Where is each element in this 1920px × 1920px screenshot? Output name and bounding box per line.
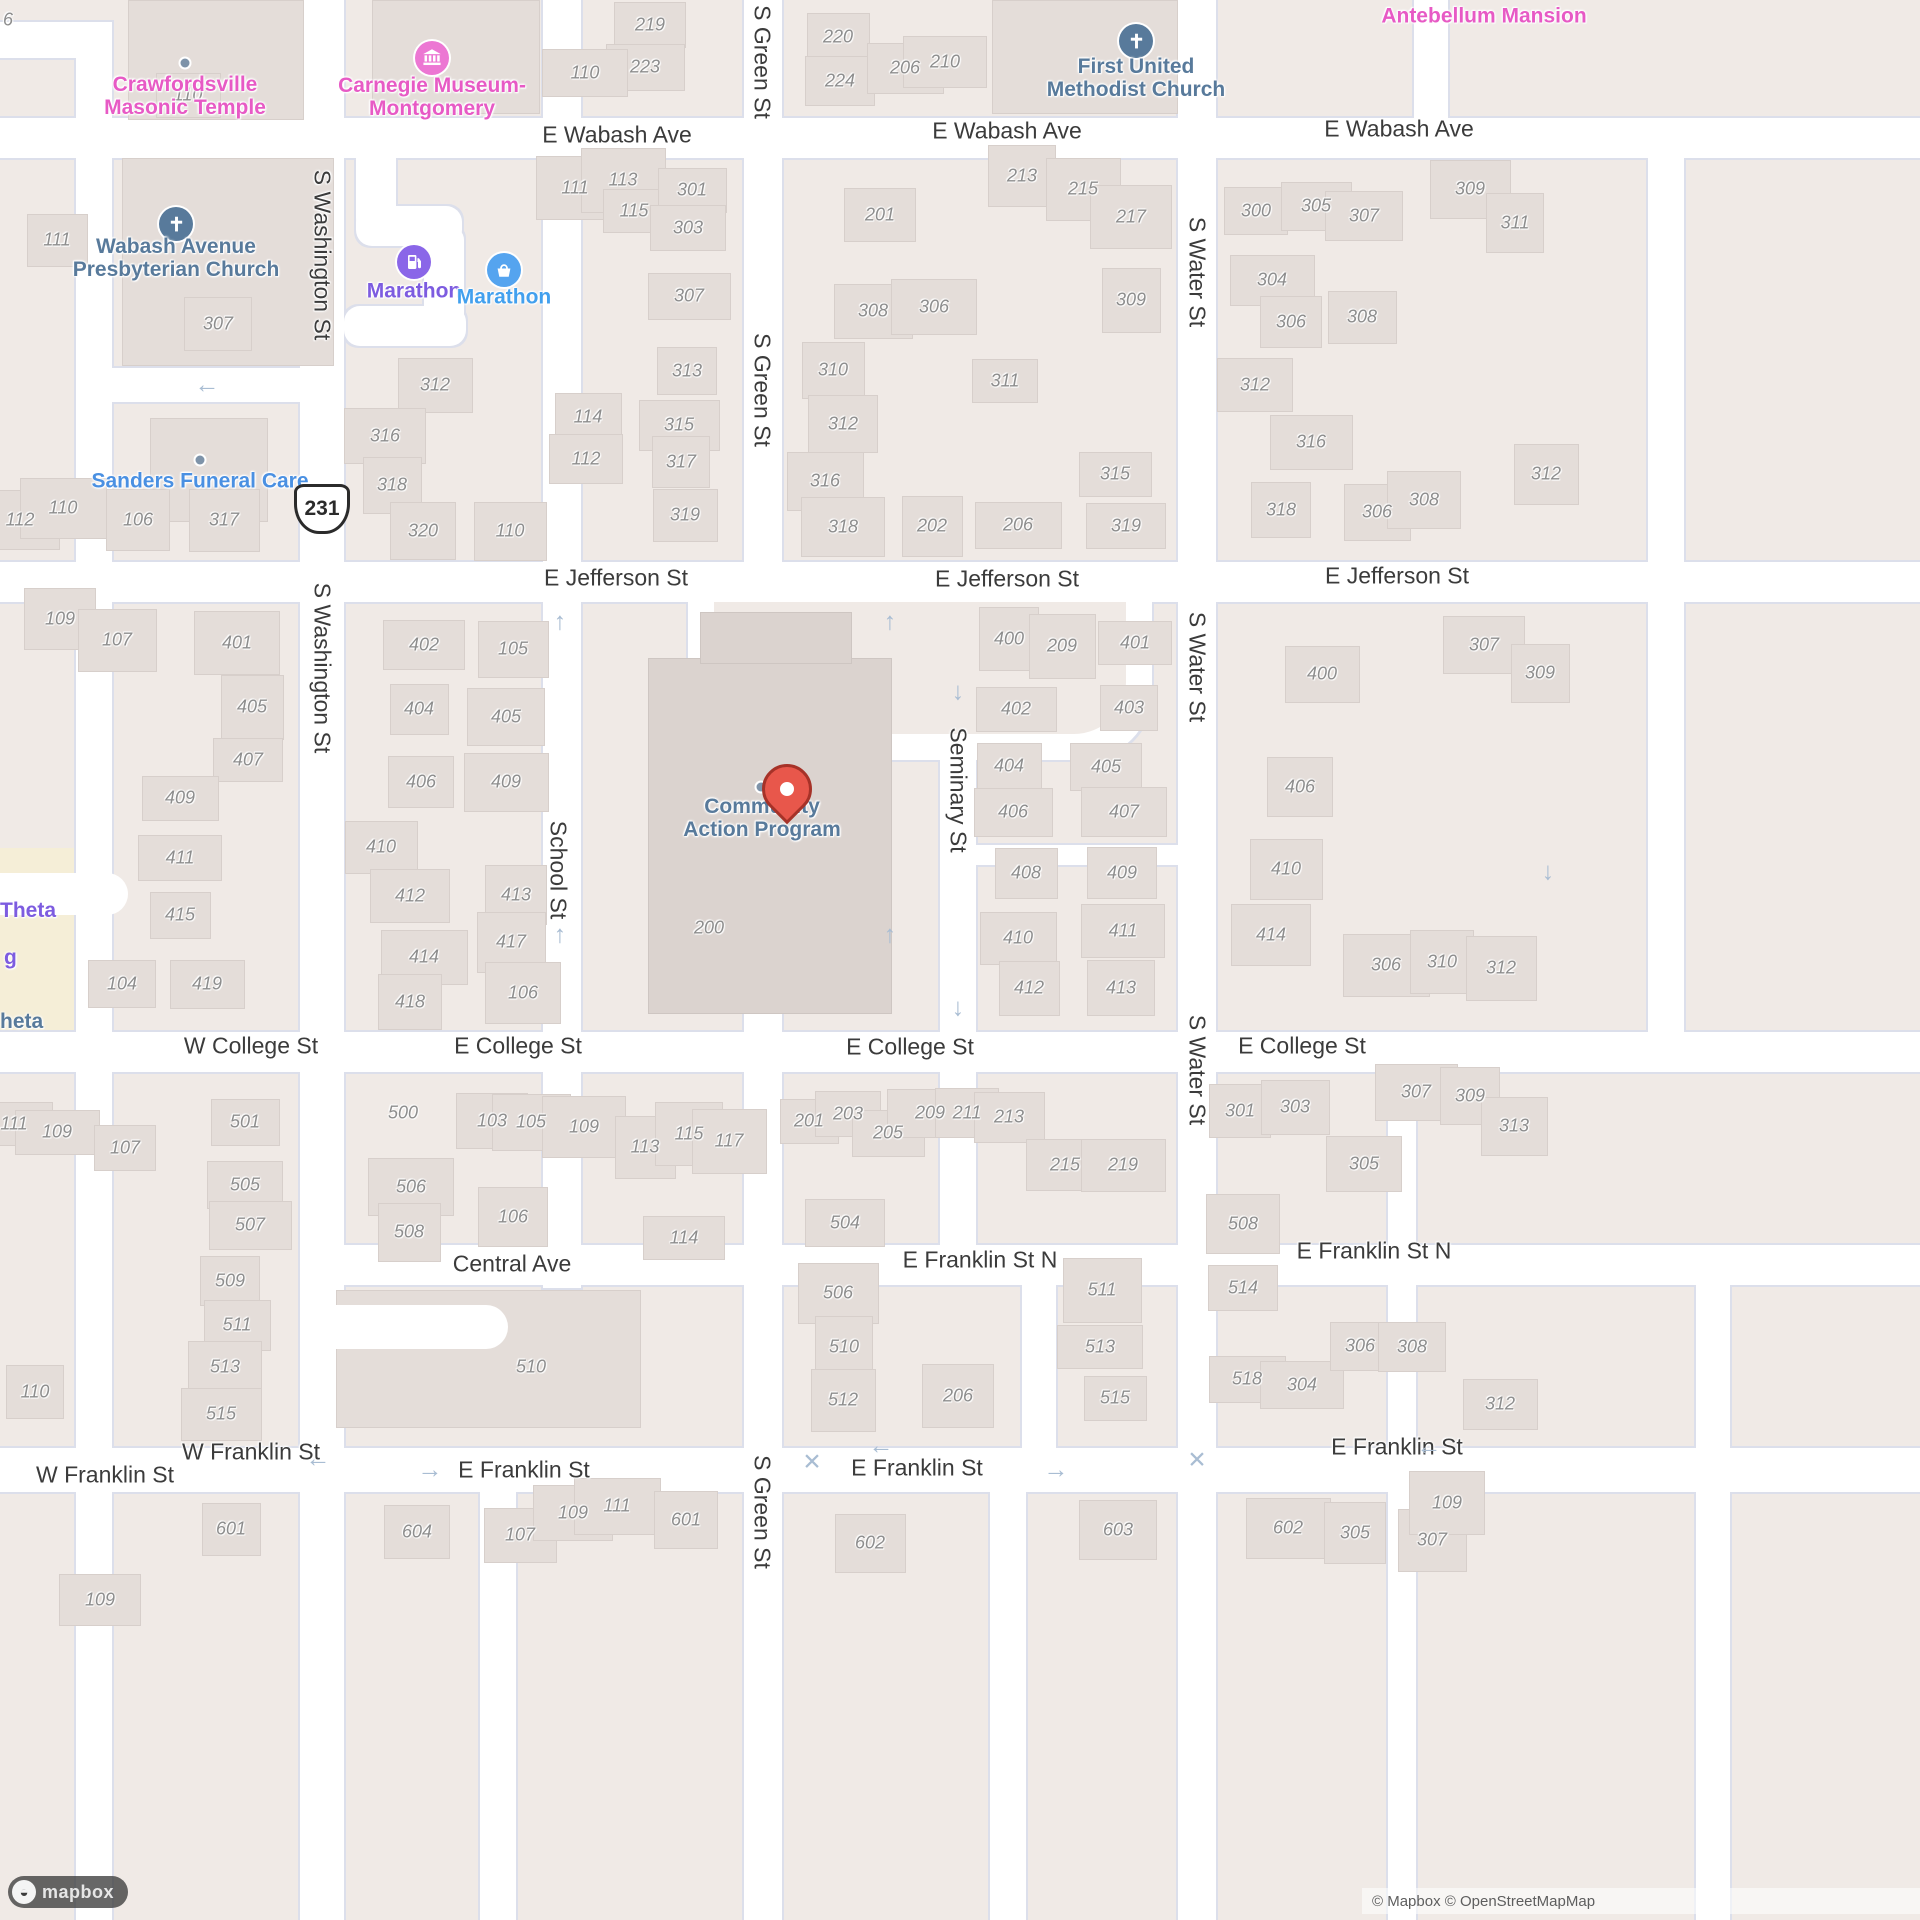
house-number-label: 404 bbox=[404, 699, 434, 720]
house-number-label: 115 bbox=[675, 1124, 704, 1145]
street-label: E Jefferson St bbox=[1325, 563, 1469, 590]
house-number-label: 110 bbox=[49, 498, 78, 519]
street-label: S Water St bbox=[1184, 1015, 1211, 1125]
house-number-label: 513 bbox=[1085, 1337, 1115, 1358]
house-number-label: 506 bbox=[396, 1177, 426, 1198]
poi-label-sanders-funeral-care[interactable]: Sanders Funeral Care bbox=[91, 470, 308, 493]
house-number-label: 316 bbox=[1296, 432, 1326, 453]
house-number-label: 224 bbox=[825, 71, 855, 92]
house-number-label: 308 bbox=[1347, 307, 1377, 328]
house-number-label: 410 bbox=[366, 837, 396, 858]
oneway-arrow-icon: → bbox=[418, 1456, 443, 1485]
house-number-label: 603 bbox=[1103, 1520, 1133, 1541]
oneway-arrow-icon: ↑ bbox=[884, 608, 897, 637]
oneway-arrow-icon: ↓ bbox=[1542, 858, 1555, 887]
house-number-label: 515 bbox=[1100, 1388, 1130, 1409]
house-number-label: 111 bbox=[603, 1496, 630, 1517]
house-number-label: 306 bbox=[1362, 502, 1392, 523]
house-number-label: 403 bbox=[1114, 698, 1144, 719]
edge-clipped-label: g bbox=[4, 946, 17, 970]
house-number-label: 304 bbox=[1257, 270, 1287, 291]
house-number-label: 515 bbox=[206, 1404, 236, 1425]
street-label: S Washington St bbox=[309, 583, 336, 753]
poi-label-wabash-avenue-presbyterian-church[interactable]: Wabash AvenuePresbyterian Church bbox=[73, 235, 280, 281]
junction-x-icon: ✕ bbox=[1187, 1447, 1206, 1474]
house-number-label: 305 bbox=[1301, 196, 1331, 217]
house-number-label: 410 bbox=[1003, 928, 1033, 949]
street-label: S Washington St bbox=[309, 170, 336, 340]
house-number-label: 414 bbox=[409, 947, 439, 968]
house-number-label: 413 bbox=[501, 885, 531, 906]
house-number-label: 512 bbox=[828, 1390, 858, 1411]
house-number-label: 306 bbox=[919, 297, 949, 318]
house-number-label: 109 bbox=[1432, 1493, 1462, 1514]
house-number-label: 400 bbox=[994, 629, 1024, 650]
house-number-label: 217 bbox=[1116, 207, 1146, 228]
street-label: Central Ave bbox=[453, 1251, 571, 1278]
street-label: W Franklin St bbox=[36, 1462, 174, 1489]
house-number-label: 307 bbox=[674, 286, 704, 307]
street-label: E Wabash Ave bbox=[542, 122, 692, 149]
poi-label-carnegie-museum-montgomery[interactable]: Carnegie Museum-Montgomery bbox=[338, 74, 526, 120]
house-number-label: 109 bbox=[569, 1117, 599, 1138]
house-number-label: 405 bbox=[491, 707, 521, 728]
house-number-label: 114 bbox=[670, 1228, 699, 1249]
house-number-label: 109 bbox=[85, 1590, 115, 1611]
street-label: S Water St bbox=[1184, 612, 1211, 722]
house-number-label: 211 bbox=[953, 1103, 982, 1124]
oneway-arrow-icon: ← bbox=[195, 371, 220, 400]
house-number-label: 106 bbox=[123, 510, 153, 531]
house-number-label: 209 bbox=[1047, 636, 1077, 657]
house-number-label: 105 bbox=[516, 1112, 546, 1133]
house-number-label: 318 bbox=[828, 517, 858, 538]
oneway-arrow-icon: ← bbox=[1417, 1433, 1442, 1462]
house-number-label: 306 bbox=[1371, 955, 1401, 976]
street-label: S Green St bbox=[749, 1455, 776, 1569]
house-number-label: 201 bbox=[794, 1111, 824, 1132]
oneway-arrow-icon: ↓ bbox=[952, 994, 965, 1023]
house-number-label: 202 bbox=[917, 516, 947, 537]
oneway-arrow-icon: ← bbox=[306, 1445, 331, 1474]
house-number-label: 300 bbox=[1241, 201, 1271, 222]
house-number-label: 406 bbox=[998, 802, 1028, 823]
house-number-label: 504 bbox=[830, 1213, 860, 1234]
house-number-label: 114 bbox=[574, 407, 603, 428]
house-number-label: 109 bbox=[558, 1503, 588, 1524]
house-number-label: 309 bbox=[1525, 663, 1555, 684]
street-label: W College St bbox=[184, 1033, 318, 1060]
house-number-label: 511 bbox=[1088, 1280, 1117, 1301]
house-number-label: 109 bbox=[42, 1122, 72, 1143]
house-number-label: 419 bbox=[192, 974, 222, 995]
street-label: E Franklin St N bbox=[1297, 1238, 1452, 1265]
attribution-clipped: Map bbox=[1566, 1893, 1595, 1910]
house-number-label: 411 bbox=[1109, 921, 1138, 942]
house-number-label: 219 bbox=[635, 15, 665, 36]
house-number-label: 312 bbox=[420, 375, 450, 396]
house-number-label: 303 bbox=[1280, 1097, 1310, 1118]
oneway-arrow-icon: ↑ bbox=[554, 921, 567, 950]
house-number-label: 400 bbox=[1307, 664, 1337, 685]
house-number-label: 604 bbox=[402, 1522, 432, 1543]
poi-label-crawfordsville-masonic-temple[interactable]: CrawfordsvilleMasonic Temple bbox=[104, 73, 266, 119]
street-label: E College St bbox=[846, 1034, 974, 1061]
house-number-label: 318 bbox=[1266, 500, 1296, 521]
house-number-label: 413 bbox=[1106, 978, 1136, 999]
house-number-label: 312 bbox=[1240, 375, 1270, 396]
house-number-label: 405 bbox=[1091, 757, 1121, 778]
house-number-label: 213 bbox=[994, 1107, 1024, 1128]
house-number-label: 317 bbox=[209, 510, 239, 531]
house-number-label: 601 bbox=[671, 1510, 701, 1531]
street-label: E Jefferson St bbox=[544, 565, 688, 592]
edge-clipped-label: Theta bbox=[0, 899, 56, 923]
street-label: E Jefferson St bbox=[935, 566, 1079, 593]
house-number-label: 203 bbox=[833, 1104, 863, 1125]
street-label: S Green St bbox=[749, 5, 776, 119]
house-number-label: 514 bbox=[1228, 1278, 1258, 1299]
house-number-label: 417 bbox=[496, 932, 526, 953]
oneway-arrow-icon: ↓ bbox=[952, 678, 965, 707]
house-number-label: 311 bbox=[1501, 213, 1530, 234]
oneway-arrow-icon: ↑ bbox=[554, 608, 567, 637]
edge-clipped-label: heta bbox=[0, 1010, 43, 1034]
house-number-label: 304 bbox=[1287, 1375, 1317, 1396]
house-number-label: 107 bbox=[110, 1138, 140, 1159]
oneway-arrow-icon: → bbox=[1044, 1456, 1069, 1485]
house-number-label: 415 bbox=[165, 905, 195, 926]
house-number-label: 518 bbox=[1232, 1369, 1262, 1390]
house-number-label: 117 bbox=[715, 1131, 744, 1152]
house-number-label: 505 bbox=[230, 1175, 260, 1196]
house-number-label: 308 bbox=[1409, 490, 1439, 511]
house-number-label: 107 bbox=[505, 1525, 535, 1546]
house-number-label: 411 bbox=[166, 848, 195, 869]
house-number-label: 109 bbox=[45, 609, 75, 630]
house-number-label: 409 bbox=[165, 788, 195, 809]
house-number-label: 305 bbox=[1349, 1154, 1379, 1175]
house-number-label: 110 bbox=[496, 521, 525, 542]
mapbox-wordmark: mapbox bbox=[42, 1882, 114, 1903]
house-number-label: 113 bbox=[631, 1137, 660, 1158]
house-number-label: 306 bbox=[1345, 1336, 1375, 1357]
map-canvas[interactable]: ◒ mapbox © Mapbox © OpenStreetMapMap 611… bbox=[0, 0, 1920, 1920]
house-number-label: 316 bbox=[370, 426, 400, 447]
house-number-label: 508 bbox=[394, 1222, 424, 1243]
house-number-label: 507 bbox=[235, 1215, 265, 1236]
street-label: W Franklin St bbox=[182, 1439, 320, 1466]
road bbox=[1648, 158, 1684, 1032]
house-number-label: 213 bbox=[1007, 166, 1037, 187]
house-number-label: 401 bbox=[222, 633, 252, 654]
house-number-label: 602 bbox=[1273, 1518, 1303, 1539]
house-number-label: 215 bbox=[1050, 1155, 1080, 1176]
poi-label-first-united-methodist-church[interactable]: First UnitedMethodist Church bbox=[1047, 55, 1226, 101]
road bbox=[344, 306, 466, 346]
fuel-icon bbox=[397, 245, 431, 279]
poi-label-community-action-program[interactable]: CommunityAction Program bbox=[683, 795, 841, 841]
house-number-label: 308 bbox=[858, 301, 888, 322]
house-number-label: 313 bbox=[672, 361, 702, 382]
street-label: E College St bbox=[1238, 1033, 1366, 1060]
house-number-label: 112 bbox=[572, 449, 601, 470]
house-number-label: 506 bbox=[823, 1283, 853, 1304]
house-number-label: 407 bbox=[1109, 802, 1139, 823]
cross-icon bbox=[1119, 24, 1153, 58]
house-number-label: 510 bbox=[516, 1357, 546, 1378]
house-number-label: 312 bbox=[1485, 1394, 1515, 1415]
house-number-label: 201 bbox=[865, 205, 895, 226]
house-number-label: 220 bbox=[823, 27, 853, 48]
house-number-label: 317 bbox=[666, 452, 696, 473]
house-number-label: 112 bbox=[6, 510, 35, 531]
house-number-label: 103 bbox=[477, 1111, 507, 1132]
house-number-label: 408 bbox=[1011, 863, 1041, 884]
poi-label-marathon-store[interactable]: Marathon bbox=[457, 286, 552, 309]
street-label: S Green St bbox=[749, 333, 776, 447]
house-number-label: 319 bbox=[1111, 516, 1141, 537]
house-number-label: 215 bbox=[1068, 179, 1098, 200]
house-number-label: 414 bbox=[1256, 925, 1286, 946]
mapbox-logo[interactable]: ◒ mapbox bbox=[8, 1876, 128, 1908]
street-label: Seminary St bbox=[945, 727, 972, 852]
house-number-label: 205 bbox=[873, 1123, 903, 1144]
house-number-label: 210 bbox=[930, 52, 960, 73]
house-number-label: 303 bbox=[673, 218, 703, 239]
street-label: E Franklin St N bbox=[903, 1247, 1058, 1274]
house-number-label: 310 bbox=[818, 360, 848, 381]
house-number-label: 508 bbox=[1228, 1214, 1258, 1235]
house-number-label: 402 bbox=[409, 635, 439, 656]
house-number-label: 111 bbox=[43, 230, 70, 251]
street-label: E College St bbox=[454, 1033, 582, 1060]
house-number-label: 111 bbox=[0, 1114, 27, 1135]
house-number-label: 316 bbox=[810, 471, 840, 492]
house-number-label: 501 bbox=[230, 1112, 260, 1133]
house-number-label: 223 bbox=[630, 57, 660, 78]
house-number-label: 309 bbox=[1116, 290, 1146, 311]
house-number-label: 402 bbox=[1001, 699, 1031, 720]
house-number-label: 104 bbox=[107, 974, 137, 995]
house-number-label: 500 bbox=[388, 1103, 418, 1124]
house-number-label: 311 bbox=[991, 371, 1020, 392]
house-number-label: 107 bbox=[102, 630, 132, 651]
street-label: S Water St bbox=[1184, 217, 1211, 327]
house-number-label: 209 bbox=[915, 1103, 945, 1124]
house-number-label: 410 bbox=[1271, 859, 1301, 880]
road bbox=[990, 1492, 1026, 1920]
street-label: School St bbox=[545, 821, 572, 919]
house-number-label: 509 bbox=[215, 1271, 245, 1292]
basket-icon bbox=[487, 253, 521, 287]
junction-x-icon: ✕ bbox=[802, 1449, 821, 1476]
house-number-label: 409 bbox=[1107, 863, 1137, 884]
house-number-label: 406 bbox=[1285, 777, 1315, 798]
house-number-label: 513 bbox=[210, 1357, 240, 1378]
road bbox=[1696, 1285, 1730, 1920]
house-number-label: 219 bbox=[1108, 1155, 1138, 1176]
house-number-label: 307 bbox=[1417, 1530, 1447, 1551]
house-number-label: 404 bbox=[994, 756, 1024, 777]
museum-icon bbox=[415, 41, 449, 75]
house-number-label: 309 bbox=[1455, 1086, 1485, 1107]
house-number-label: 406 bbox=[406, 772, 436, 793]
poi-dot bbox=[181, 59, 190, 68]
street-label: E Wabash Ave bbox=[932, 118, 1082, 145]
house-number-label: 312 bbox=[1486, 958, 1516, 979]
house-number-label: 305 bbox=[1340, 1523, 1370, 1544]
house-number-label: 115 bbox=[620, 201, 649, 222]
house-number-label: 405 bbox=[237, 697, 267, 718]
attribution-bar: © Mapbox © OpenStreetMapMap bbox=[1362, 1888, 1920, 1914]
house-number-label: 312 bbox=[828, 414, 858, 435]
house-number-label: 601 bbox=[216, 1519, 246, 1540]
house-number-label: 111 bbox=[561, 178, 588, 199]
house-number-label: 409 bbox=[491, 772, 521, 793]
house-number-label: 307 bbox=[203, 314, 233, 335]
house-number-label: 206 bbox=[1003, 515, 1033, 536]
house-number-label: 407 bbox=[233, 750, 263, 771]
house-number-label: 200 bbox=[694, 918, 724, 939]
house-number-label: 315 bbox=[1100, 464, 1130, 485]
house-number-label: 206 bbox=[943, 1386, 973, 1407]
house-number-label: 315 bbox=[664, 415, 694, 436]
house-number-label: 602 bbox=[855, 1533, 885, 1554]
house-number-label: 307 bbox=[1401, 1082, 1431, 1103]
house-number-label: 318 bbox=[377, 475, 407, 496]
house-number-label: 301 bbox=[1225, 1101, 1255, 1122]
house-number-label: 113 bbox=[609, 170, 638, 191]
street-label: E Franklin St bbox=[1331, 1434, 1463, 1461]
house-number-label: 206 bbox=[890, 58, 920, 79]
driveway bbox=[336, 1305, 508, 1349]
house-number-label: 110 bbox=[21, 1382, 50, 1403]
poi-dot bbox=[196, 456, 205, 465]
house-number-label: 412 bbox=[1014, 978, 1044, 999]
street-label: E Wabash Ave bbox=[1324, 116, 1474, 143]
mapbox-logo-icon: ◒ bbox=[12, 1880, 36, 1904]
poi-label-antebellum-mansion[interactable]: Antebellum Mansion bbox=[1381, 5, 1586, 28]
house-number-label: 412 bbox=[395, 886, 425, 907]
house-number-label: 307 bbox=[1349, 206, 1379, 227]
house-number-label: 106 bbox=[498, 1207, 528, 1228]
house-number-label: 313 bbox=[1499, 1116, 1529, 1137]
house-number-label: 309 bbox=[1455, 179, 1485, 200]
house-number-label: 320 bbox=[408, 521, 438, 542]
house-number-label: 110 bbox=[571, 63, 600, 84]
house-number-label: 307 bbox=[1469, 635, 1499, 656]
house-number-label: 401 bbox=[1120, 633, 1150, 654]
oneway-arrow-icon: ↑ bbox=[884, 921, 897, 950]
house-number-label: 312 bbox=[1531, 464, 1561, 485]
oneway-arrow-icon: ← bbox=[869, 1432, 894, 1461]
attribution-links[interactable]: © Mapbox © OpenStreetMap bbox=[1372, 1893, 1566, 1910]
house-number-label: 319 bbox=[670, 505, 700, 526]
house-number-label: 106 bbox=[508, 983, 538, 1004]
poi-label-marathon-fuel[interactable]: Marathon bbox=[367, 280, 462, 303]
building bbox=[700, 612, 852, 664]
house-number-label: 510 bbox=[829, 1337, 859, 1358]
house-number-label: 310 bbox=[1427, 952, 1457, 973]
house-number-label: 301 bbox=[677, 180, 707, 201]
house-number-label: 511 bbox=[223, 1315, 252, 1336]
street-label: E Franklin St bbox=[458, 1457, 590, 1484]
house-number-label: 418 bbox=[395, 992, 425, 1013]
house-number-label: 6 bbox=[3, 10, 13, 31]
house-number-label: 308 bbox=[1397, 1337, 1427, 1358]
house-number-label: 306 bbox=[1276, 312, 1306, 333]
house-number-label: 105 bbox=[498, 639, 528, 660]
